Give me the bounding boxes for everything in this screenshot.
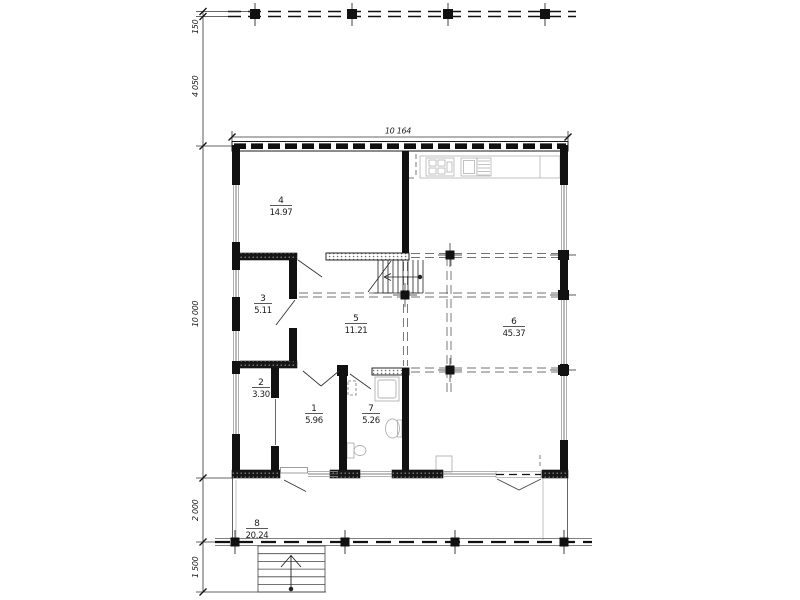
dim-top-width: 10 164 (385, 127, 411, 136)
room-area: 11.21 (345, 326, 368, 336)
door-post (337, 365, 348, 376)
room-area: 5.11 (254, 306, 272, 316)
room-number: 4 (278, 196, 284, 206)
wall-room4-right (402, 151, 409, 260)
wall-room3-top (240, 253, 297, 260)
floor-plan-drawing: 150 4 050 10 000 2 000 1 500 10 164 (0, 0, 800, 600)
wall-room1-room7 (339, 368, 347, 470)
room-number: 2 (258, 378, 264, 388)
dim-balcony-offset: 4 050 (191, 75, 200, 97)
wall-room2-top (240, 361, 297, 368)
paper-background (0, 0, 800, 600)
room-area: 5.96 (305, 416, 323, 426)
room-area: 5.26 (362, 416, 380, 426)
room-area: 3.30 (252, 390, 270, 400)
wall-room7-right (402, 368, 409, 470)
top-wall (232, 142, 568, 152)
dim-terrace-depth: 2 000 (191, 499, 200, 521)
room-number: 7 (368, 404, 374, 414)
wall-room2-right-upper (271, 368, 279, 398)
dim-entry-stairs: 1 500 (191, 556, 200, 578)
room-number: 6 (511, 317, 517, 327)
floor-plan-sheet: 150 4 050 10 000 2 000 1 500 10 164 (0, 0, 800, 600)
wall-room2-right-lower (271, 446, 279, 470)
room-number: 1 (311, 404, 317, 414)
room-number: 8 (254, 519, 260, 529)
wall-room3-right-upper (289, 260, 297, 299)
room-area: 20.24 (246, 531, 269, 541)
wall-stair-side (326, 253, 409, 260)
room-area: 45.37 (503, 329, 526, 339)
room-number: 5 (353, 314, 359, 324)
room-area: 14.97 (270, 208, 293, 218)
room-number: 3 (260, 294, 266, 304)
dim-left-height: 10 000 (191, 301, 200, 327)
dim-balcony-band: 150 (191, 19, 200, 34)
